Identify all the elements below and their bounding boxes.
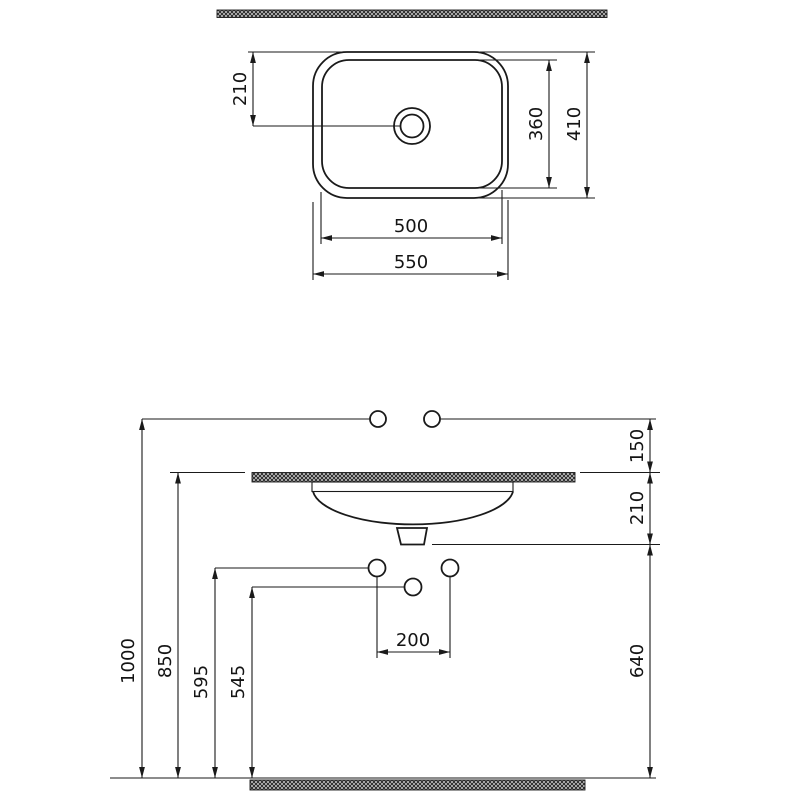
label-550: 550 — [394, 252, 428, 273]
floor-section-bar — [250, 780, 585, 790]
basin-bowl-profile — [313, 492, 513, 525]
connection-port-upper-right — [442, 560, 459, 577]
label-210-front: 210 — [627, 491, 648, 525]
countertop-section-bar — [252, 473, 575, 483]
basin-inner-outline — [322, 60, 502, 188]
label-500: 500 — [394, 216, 428, 237]
front-view: 1000 850 595 545 150 210 640 200 — [110, 411, 660, 790]
drain-inner-circle — [401, 115, 424, 138]
label-360: 360 — [526, 107, 547, 141]
supply-port-left — [370, 411, 386, 427]
top-view: 210 360 410 500 550 — [217, 10, 607, 280]
top-view-extension-lines — [248, 52, 595, 280]
drain-outlet-profile — [397, 528, 427, 545]
label-640: 640 — [627, 644, 648, 678]
label-410: 410 — [564, 107, 585, 141]
label-545: 545 — [228, 665, 249, 699]
label-1000: 1000 — [118, 638, 139, 684]
label-200: 200 — [396, 630, 430, 651]
front-view-extension-lines — [110, 473, 660, 779]
supply-port-right — [424, 411, 440, 427]
label-595: 595 — [191, 665, 212, 699]
label-210-top: 210 — [230, 72, 251, 106]
basin-rim-section — [312, 482, 513, 492]
top-view-dimension-lines — [253, 52, 587, 274]
connection-port-upper-left — [369, 560, 386, 577]
wall-section-bar-top — [217, 10, 607, 18]
label-850: 850 — [155, 644, 176, 678]
technical-drawing-page: 210 360 410 500 550 — [0, 0, 800, 800]
basin-outer-outline — [313, 52, 508, 198]
drawing-canvas: 210 360 410 500 550 — [0, 0, 800, 800]
connection-port-lower-center — [405, 579, 422, 596]
label-150: 150 — [627, 429, 648, 463]
